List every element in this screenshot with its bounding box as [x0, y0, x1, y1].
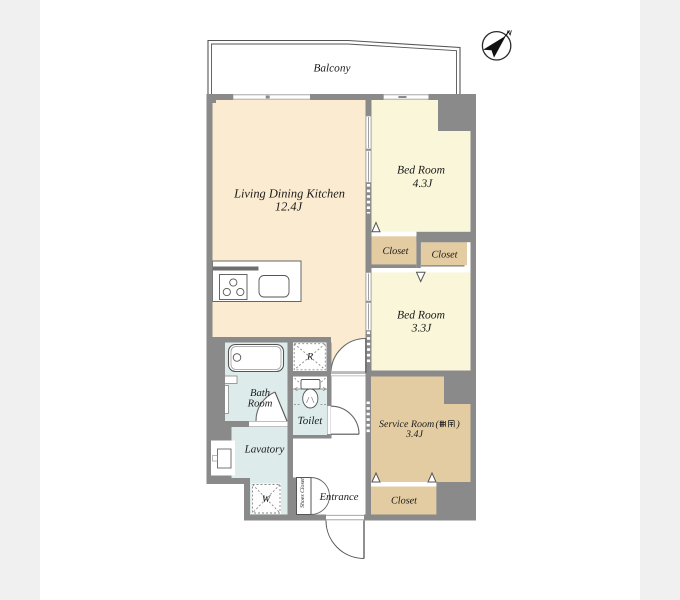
svg-text:Living Dining Kitchen: Living Dining Kitchen: [233, 187, 345, 201]
svg-text:3.4J: 3.4J: [405, 429, 424, 440]
svg-text:Shoes Closet: Shoes Closet: [299, 478, 306, 508]
svg-text:Closet: Closet: [382, 246, 409, 257]
svg-text:Room: Room: [247, 399, 273, 410]
svg-text:Balcony: Balcony: [313, 63, 351, 75]
svg-text:Closet: Closet: [391, 496, 418, 507]
svg-text:R: R: [306, 352, 313, 363]
svg-text:Bath: Bath: [250, 388, 270, 399]
svg-text:Bed Room: Bed Room: [397, 164, 445, 177]
svg-text:Lavatory: Lavatory: [244, 444, 285, 456]
svg-text:4.3J: 4.3J: [413, 177, 433, 190]
svg-text:Entrance: Entrance: [319, 492, 359, 503]
svg-text:): ): [456, 419, 460, 430]
svg-text:Toilet: Toilet: [298, 415, 324, 427]
svg-text:12.4J: 12.4J: [275, 200, 303, 214]
svg-text:Bed Room: Bed Room: [397, 309, 445, 322]
svg-text:Closet: Closet: [431, 250, 458, 261]
svg-text:3.3J: 3.3J: [411, 322, 432, 335]
